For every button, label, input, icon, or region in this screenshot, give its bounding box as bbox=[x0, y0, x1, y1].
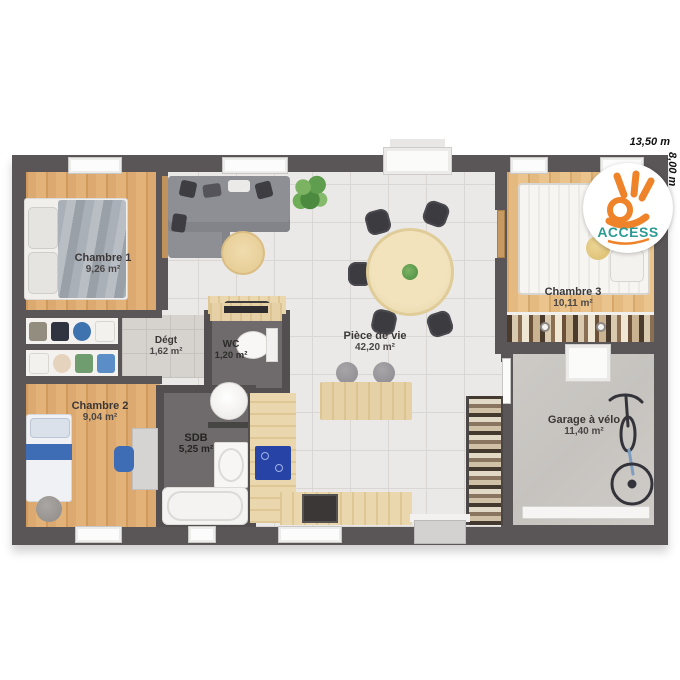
sofa-cushion bbox=[202, 183, 222, 198]
kitchen-counter-bottom bbox=[280, 492, 412, 525]
logo-text: ACCESS bbox=[597, 224, 658, 240]
room-area: 9,26 m² bbox=[75, 264, 132, 275]
room-label-sdb: SDB 5,25 m² bbox=[179, 432, 213, 455]
floor-plan-canvas: Chambre 1 9,26 m² Chambre 2 9,04 m² Cham… bbox=[0, 0, 680, 680]
room-label-piece-de-vie: Pièce de vie 42,20 m² bbox=[344, 330, 407, 353]
window bbox=[510, 157, 548, 174]
closet-shelf bbox=[26, 350, 118, 376]
window bbox=[75, 526, 122, 543]
room-area: 9,04 m² bbox=[72, 412, 129, 423]
window bbox=[222, 157, 288, 174]
storage-box bbox=[97, 354, 115, 373]
room-area: 5,25 m² bbox=[179, 444, 213, 455]
room-name: Pièce de vie bbox=[344, 330, 407, 342]
door-chambre-3 bbox=[497, 210, 505, 258]
table-centerpiece bbox=[402, 264, 418, 280]
dimension-width: 13,50 m bbox=[560, 136, 670, 148]
storage-basket bbox=[73, 322, 91, 341]
bathtub-inner bbox=[167, 491, 243, 521]
sink-bowl bbox=[218, 448, 244, 482]
wardrobe-knob bbox=[596, 322, 606, 332]
pillow bbox=[30, 418, 70, 438]
plant bbox=[287, 171, 333, 217]
burner bbox=[275, 464, 283, 472]
window bbox=[68, 157, 122, 174]
storage-box bbox=[29, 353, 49, 374]
room-name: Chambre 2 bbox=[72, 400, 129, 412]
interior-wall bbox=[22, 310, 162, 318]
garage-side-door bbox=[565, 344, 611, 382]
room-area: 1,62 m² bbox=[150, 346, 183, 357]
coffee-table bbox=[221, 231, 265, 275]
bed-throw bbox=[26, 444, 72, 460]
access-logo: ACCESS bbox=[583, 163, 673, 253]
bathroom-shelf bbox=[208, 422, 248, 428]
storage-basket bbox=[53, 354, 71, 373]
sofa-cushion bbox=[228, 180, 250, 192]
room-name: WC bbox=[215, 339, 248, 350]
bicycle bbox=[598, 390, 654, 510]
room-area: 11,40 m² bbox=[548, 426, 620, 437]
tv bbox=[224, 306, 268, 313]
storage-box bbox=[51, 322, 69, 341]
pillow bbox=[610, 250, 644, 282]
window bbox=[278, 526, 342, 543]
oven bbox=[302, 494, 338, 523]
desk-chair bbox=[114, 446, 134, 472]
bar-stool bbox=[336, 362, 358, 384]
room-name: Chambre 3 bbox=[545, 286, 602, 298]
burner bbox=[261, 452, 269, 460]
room-area: 42,20 m² bbox=[344, 342, 407, 353]
room-name: SDB bbox=[179, 432, 213, 444]
wardrobe-knob bbox=[540, 322, 550, 332]
desk bbox=[132, 428, 158, 490]
toilet-tank bbox=[266, 328, 278, 362]
cooktop bbox=[255, 446, 291, 480]
room-name: Garage à vélo bbox=[548, 414, 620, 426]
storage-box bbox=[95, 321, 115, 342]
entry-door bbox=[414, 520, 466, 544]
room-label-garage: Garage à vélo 11,40 m² bbox=[548, 414, 620, 437]
room-label-chambre-1: Chambre 1 9,26 m² bbox=[75, 252, 132, 275]
wardrobe bbox=[507, 312, 654, 342]
interior-wall bbox=[495, 163, 507, 210]
shoe-rack bbox=[466, 396, 503, 525]
interior-wall bbox=[495, 258, 507, 352]
pillow bbox=[28, 252, 58, 294]
washbasin-round bbox=[210, 382, 248, 420]
duvet bbox=[58, 200, 126, 298]
window bbox=[188, 526, 216, 543]
room-name: Dégt bbox=[150, 335, 183, 346]
room-name: Chambre 1 bbox=[75, 252, 132, 264]
interior-wall bbox=[22, 376, 162, 384]
patio-door bbox=[383, 147, 452, 175]
ok-hand-icon bbox=[609, 174, 651, 225]
bar-stool bbox=[373, 362, 395, 384]
pillow bbox=[28, 207, 58, 249]
sofa-cushion bbox=[179, 180, 198, 199]
storage-box bbox=[75, 354, 93, 373]
room-label-wc: WC 1,20 m² bbox=[215, 339, 248, 361]
room-label-chambre-2: Chambre 2 9,04 m² bbox=[72, 400, 129, 423]
room-area: 10,11 m² bbox=[545, 298, 602, 309]
room-label-degt: Dégt 1,62 m² bbox=[150, 335, 183, 357]
sofa-cushion bbox=[171, 213, 187, 233]
door-garage bbox=[502, 358, 511, 404]
pouf bbox=[36, 496, 62, 522]
room-area: 1,20 m² bbox=[215, 350, 248, 361]
storage-box bbox=[29, 322, 47, 341]
kitchen-island bbox=[320, 382, 412, 420]
room-label-chambre-3: Chambre 3 10,11 m² bbox=[545, 286, 602, 309]
closet-shelf bbox=[26, 318, 118, 344]
